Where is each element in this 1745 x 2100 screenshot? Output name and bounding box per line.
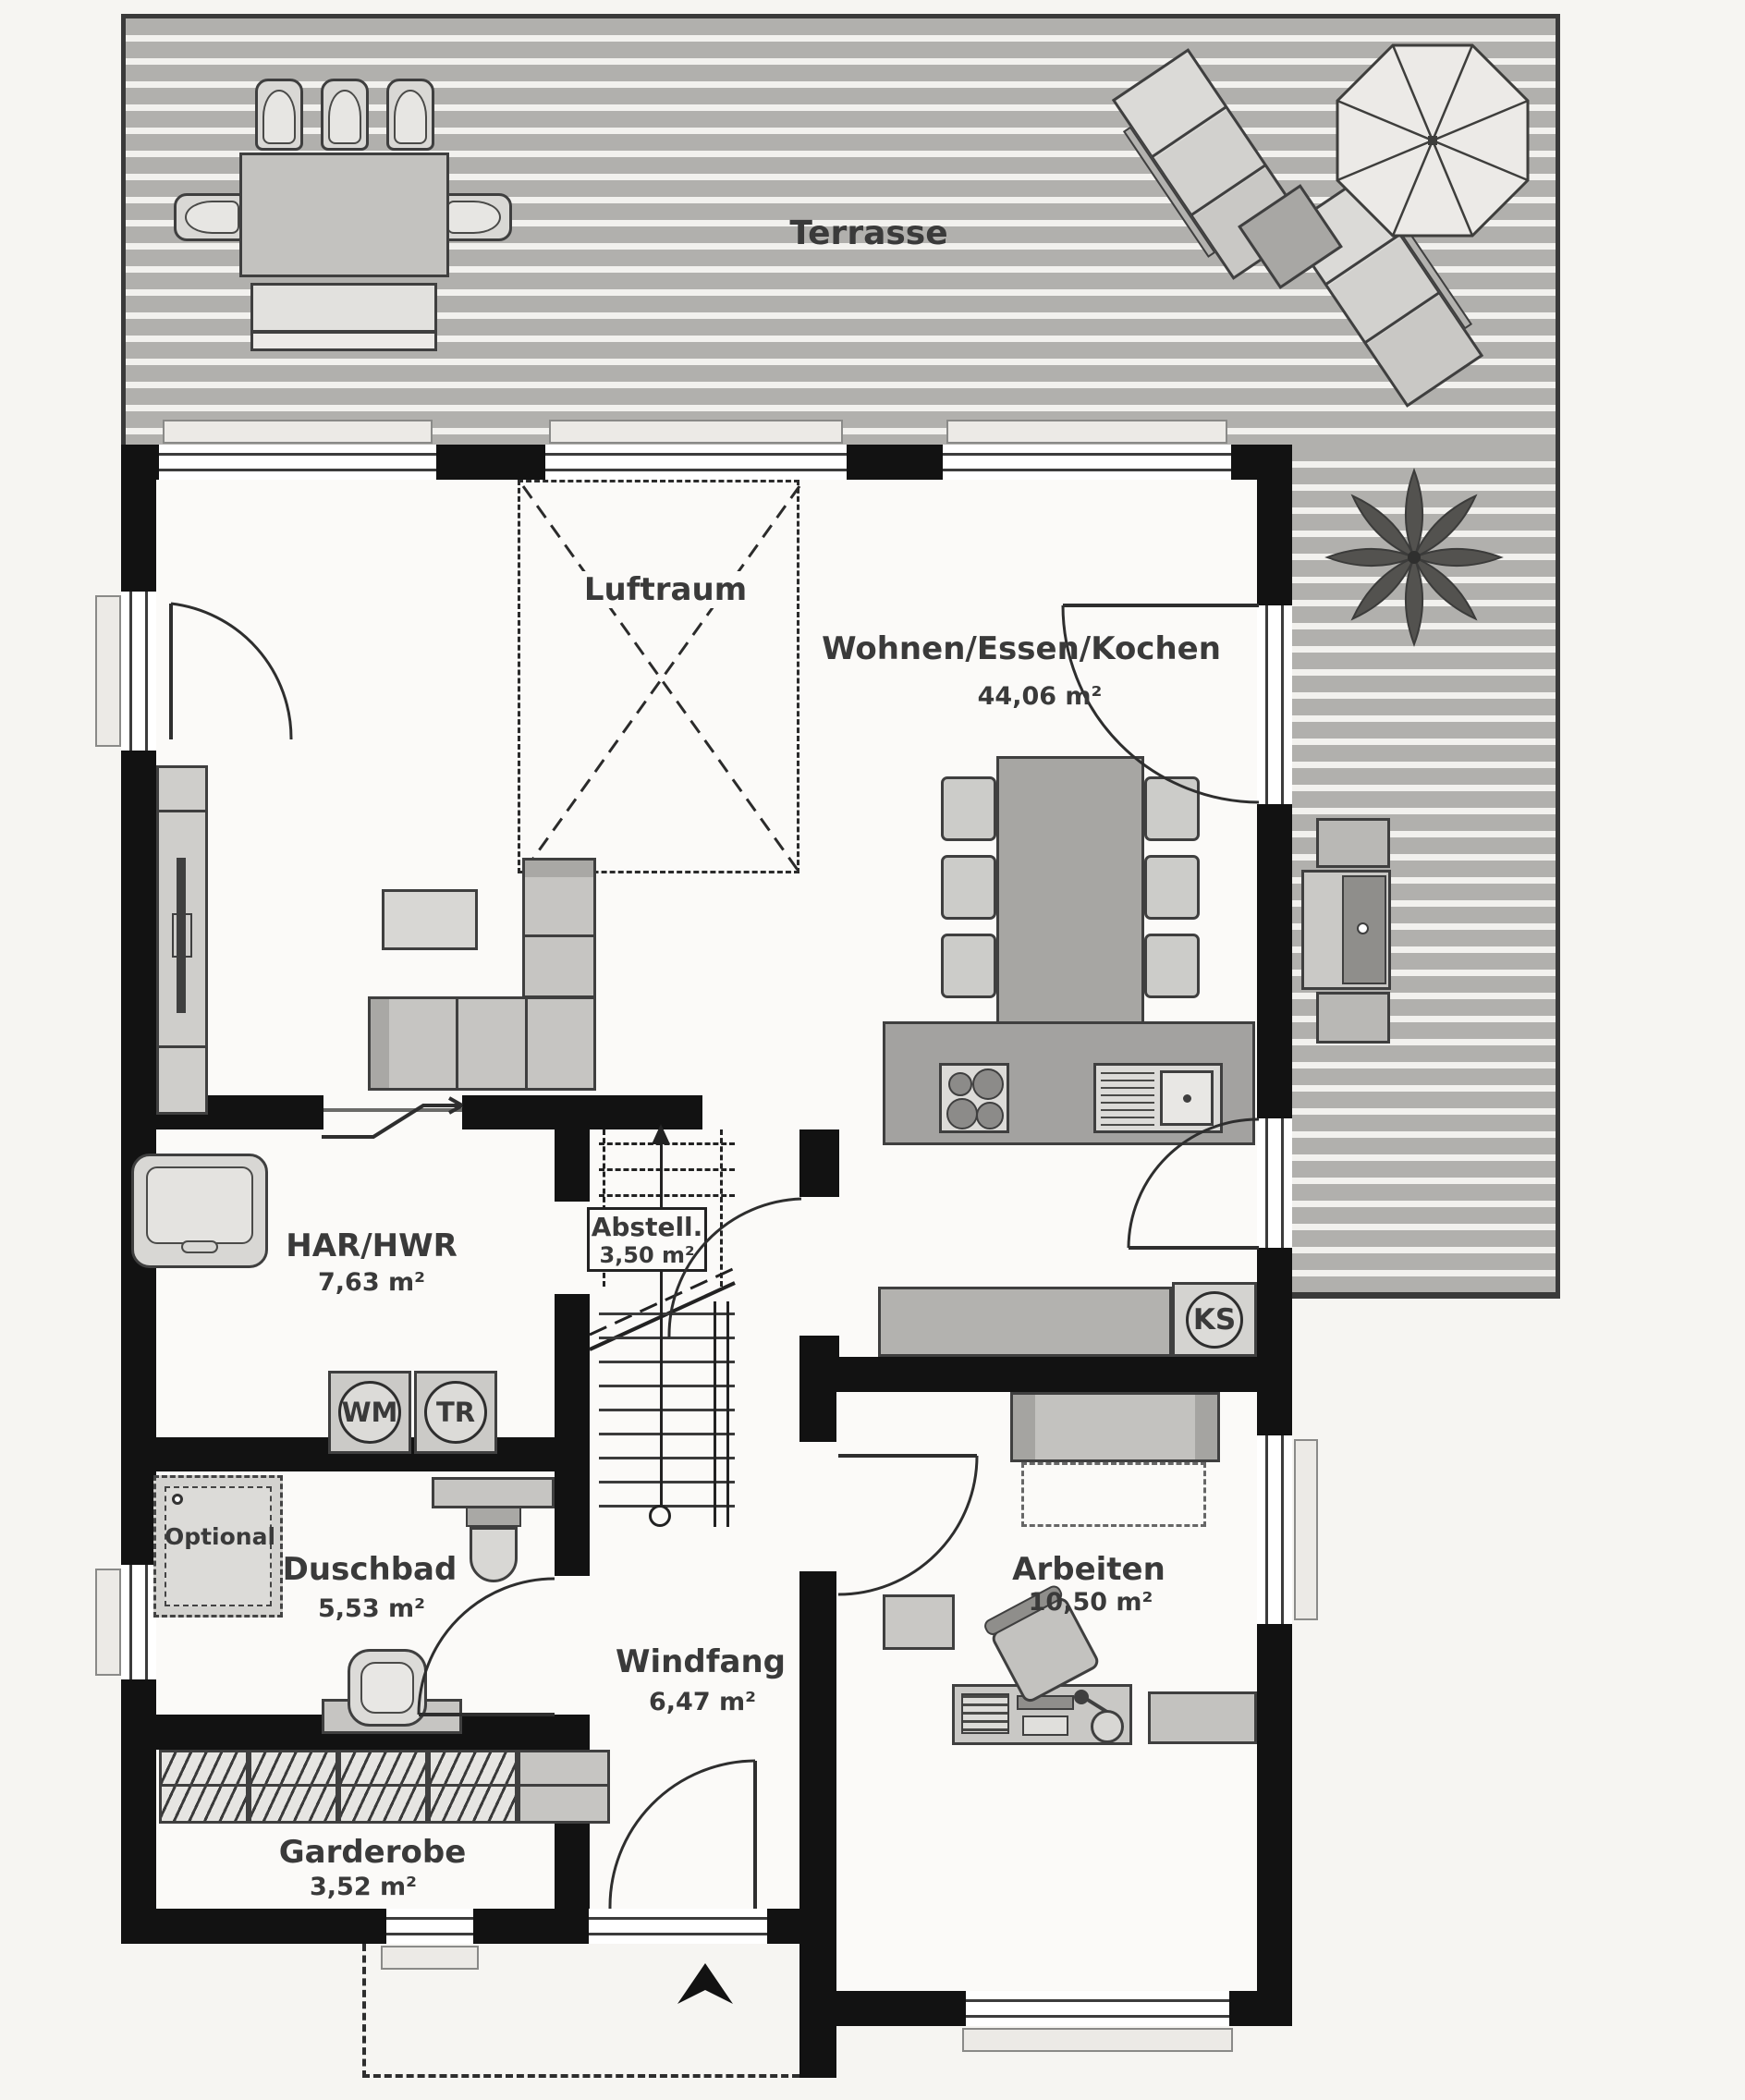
- wall-har-stairs: [555, 1294, 590, 1471]
- wall-hall-wohnen: [799, 1129, 839, 1197]
- wall-windfang-arbeiten: [799, 1357, 836, 1442]
- window-top-1: [159, 445, 436, 480]
- dining-chair: [941, 934, 996, 998]
- opening-hall-wohnen-door: [799, 1197, 839, 1336]
- tr-label: TR: [436, 1397, 475, 1428]
- wash-basin-inner: [360, 1662, 414, 1714]
- plan-shape: [322, 1098, 462, 1137]
- bath-shelf: [432, 1477, 555, 1508]
- dining-chair: [1144, 855, 1200, 920]
- wall-top-pier: [847, 445, 943, 480]
- washing-machine-icon: WM: [338, 1381, 401, 1444]
- sideboard-divider: [156, 810, 208, 812]
- duschbad-name: Duschbad: [283, 1551, 458, 1588]
- wardrobe-section: [249, 1750, 338, 1824]
- plan-shape: [610, 1761, 755, 1909]
- window-sill: [1294, 1439, 1318, 1620]
- keyboard: [1022, 1715, 1068, 1736]
- window-right-arbeiten: [1257, 1435, 1292, 1624]
- grill-shelf-bottom: [1316, 992, 1390, 1044]
- wall-top-pier: [121, 445, 159, 480]
- dryer-icon: TR: [424, 1381, 487, 1444]
- window-bottom-garderobe: [386, 1909, 473, 1944]
- utility-sink-handle: [181, 1240, 218, 1253]
- potted-plant: [1317, 458, 1511, 656]
- wall-windfang-arbeiten: [799, 1571, 836, 1909]
- fridge-ks-icon: KS: [1186, 1291, 1243, 1349]
- door-entry: [605, 1754, 761, 1911]
- kitchen-counter-south: [878, 1287, 1172, 1357]
- desk-lamp-head: [1091, 1710, 1124, 1743]
- terrace-chair: [255, 79, 303, 151]
- door-arbeiten: [832, 1449, 984, 1602]
- sideboard-divider: [156, 1045, 208, 1048]
- window-top-2: [545, 445, 847, 480]
- daybed-pullout-dashed: [1021, 1462, 1206, 1527]
- sofa-cushion-line: [456, 996, 458, 1091]
- door-kitchen-terrace: [1123, 1112, 1262, 1251]
- grill-knob: [1357, 922, 1369, 934]
- opening-arbeiten-door: [799, 1442, 836, 1571]
- wall-duschbad-east: [555, 1471, 590, 1576]
- terrace-door-kitchen: [1257, 1118, 1292, 1248]
- window-left-duschbad: [121, 1565, 156, 1679]
- stair-tread-dashed: [599, 1168, 735, 1171]
- terrasse-label: Terrasse: [789, 214, 947, 252]
- dining-chair: [1144, 934, 1200, 998]
- desk-papers: [961, 1693, 1009, 1734]
- garderobe-name: Garderobe: [279, 1834, 467, 1871]
- side-table: [1148, 1691, 1257, 1744]
- floor-plan: Luftraum Abstell. 3,50 m²: [0, 0, 1745, 2100]
- sink-drain: [1183, 1094, 1191, 1103]
- opening-abstell-door: [555, 1202, 590, 1294]
- garderobe-area: 3,52 m²: [310, 1873, 417, 1901]
- arbeiten-area: 10,50 m²: [1029, 1588, 1153, 1617]
- daybed-armrest: [1195, 1395, 1217, 1459]
- wm-label: WM: [342, 1397, 398, 1428]
- walk-line-arrow: [652, 1124, 670, 1144]
- burner: [972, 1068, 1004, 1100]
- door-hall-wohnen: [664, 1192, 804, 1340]
- plan-shape: [1408, 551, 1421, 564]
- terrace-chair: [386, 79, 434, 151]
- utility-sink-inner: [146, 1166, 253, 1244]
- plan-shape: [523, 486, 799, 873]
- door-living-west: [156, 596, 313, 753]
- wardrobe-cabinet: [518, 1750, 610, 1824]
- window-sill: [549, 420, 843, 444]
- sofa-cushion-line: [522, 934, 596, 937]
- terrace-chair: [174, 193, 246, 241]
- arbeiten-name: Arbeiten: [1012, 1551, 1165, 1588]
- duschbad-area: 5,53 m²: [318, 1594, 425, 1623]
- office-cabinet: [883, 1594, 955, 1650]
- sofa-cushion-line: [525, 996, 528, 1091]
- coffee-table: [382, 889, 478, 950]
- stairs-walk-line: [660, 1129, 663, 1518]
- terrace-chair: [321, 79, 369, 151]
- tv-bracket: [172, 913, 192, 958]
- sofa-armrest: [371, 999, 389, 1088]
- luftraum-outline: [518, 480, 799, 873]
- sofa-bottom-row: [368, 996, 596, 1091]
- wall-wohnen-arbeiten: [836, 1357, 1292, 1392]
- wardrobe-section: [159, 1750, 249, 1824]
- plan-shape: [677, 1963, 733, 2004]
- window-top-3: [943, 445, 1231, 480]
- wall-step: [799, 1909, 836, 2078]
- sliding-door-symbol: [316, 1096, 473, 1144]
- terrace-chair: [440, 193, 512, 241]
- entry-door-threshold: [589, 1909, 767, 1944]
- parasol: [1322, 30, 1540, 248]
- window-sill: [946, 420, 1227, 444]
- har-name: HAR/HWR: [286, 1227, 458, 1264]
- plan-shape: [1129, 1119, 1259, 1248]
- luftraum-x-lines: [520, 482, 802, 876]
- har-area: 7,63 m²: [318, 1268, 425, 1297]
- wall-hall-wohnen: [799, 1336, 839, 1357]
- windfang-area: 6,47 m²: [649, 1688, 756, 1716]
- plan-shape: [669, 1199, 801, 1337]
- wall-har-stairs: [555, 1129, 590, 1202]
- window-sill: [95, 595, 121, 747]
- dining-chair: [941, 855, 996, 920]
- dining-chair: [941, 776, 996, 841]
- burner: [976, 1102, 1004, 1129]
- window-left-living: [121, 592, 156, 751]
- toilet-tank: [466, 1507, 521, 1527]
- plan-shape: [1428, 136, 1437, 145]
- terrace-bench-slat: [250, 331, 437, 351]
- daybed-armrest: [1013, 1395, 1035, 1459]
- windfang-name: Windfang: [616, 1643, 786, 1680]
- window-bottom-arbeiten: [966, 1991, 1229, 2026]
- window-sill: [163, 420, 433, 444]
- optional-label: Optional: [165, 1523, 275, 1550]
- shower-drain: [172, 1494, 183, 1505]
- window-sill: [962, 2028, 1233, 2052]
- sofa-armrest: [525, 861, 593, 877]
- plan-shape: [171, 604, 291, 739]
- plan-shape: [419, 1579, 555, 1715]
- luftraum-label: Luftraum: [577, 571, 754, 608]
- office-daybed: [1010, 1392, 1220, 1462]
- wohnen-name: Wohnen/Essen/Kochen: [822, 630, 1221, 667]
- terrace-table: [239, 153, 449, 277]
- plan-shape: [838, 1456, 977, 1594]
- burner: [948, 1072, 972, 1096]
- window-sill: [95, 1569, 121, 1676]
- wall-top-pier: [436, 445, 545, 480]
- sofa-right-column: [522, 858, 596, 998]
- ks-label: KS: [1193, 1303, 1236, 1337]
- walk-line-start-circle: [649, 1505, 671, 1527]
- wohnen-area: 44,06 m²: [978, 682, 1103, 711]
- terrace-bench: [250, 283, 437, 333]
- grill-shelf-top: [1316, 818, 1390, 868]
- plan-shape: [523, 486, 799, 873]
- burner: [946, 1098, 978, 1129]
- wardrobe-section: [428, 1750, 518, 1824]
- wardrobe-mid-line: [159, 1784, 610, 1787]
- wardrobe-section: [338, 1750, 428, 1824]
- door-duschbad: [414, 1571, 560, 1719]
- entrance-arrow: [675, 1961, 736, 2008]
- opening-hall: [702, 1095, 799, 1129]
